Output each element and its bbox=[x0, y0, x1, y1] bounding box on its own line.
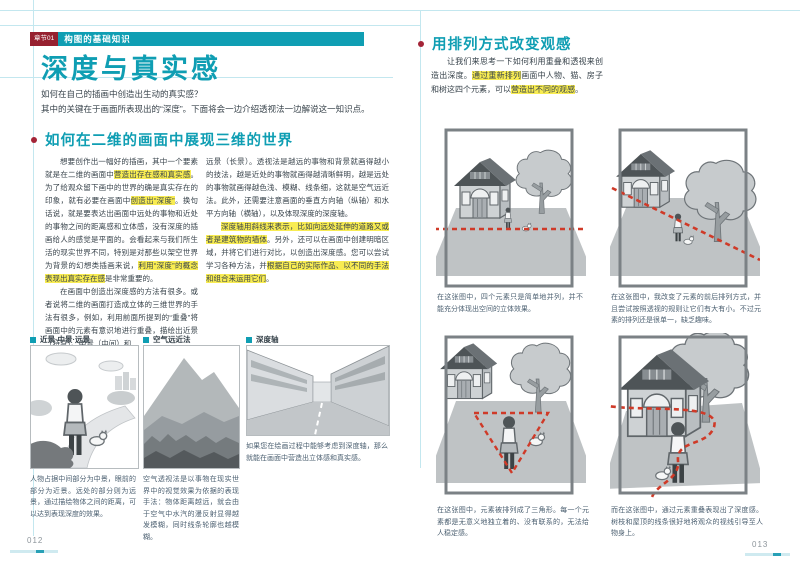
intro-line: 如何在自己的插画中创造出生动的真实感？ bbox=[41, 88, 203, 100]
arrangement-figure-1 bbox=[436, 126, 586, 294]
page-number-marker bbox=[36, 550, 44, 553]
figure-caption: 在这张图中，元素被排列成了三角形。每一个元素都是无意义地独立着的、没有联系的，无… bbox=[437, 505, 589, 540]
distant-city bbox=[115, 372, 136, 390]
cloud bbox=[99, 361, 123, 371]
body-column-2: 远景（长景）。透视法是越远的事物和背景就画得越小的技法，越是近处的事物就画得越清… bbox=[206, 155, 389, 285]
figure-caption: 而在这张图中，通过元素重叠表现出了深度感。树枝和屋顶的线条很好地将观众的视线引导… bbox=[611, 505, 763, 540]
guide-line-center-margin bbox=[420, 10, 421, 468]
guide-line-top-left bbox=[0, 25, 420, 26]
right-intro-paragraph: 让我们来思考一下如何利用重叠和透视来创造出深度。通过重新排列画面中人物、猫、房子… bbox=[431, 55, 603, 97]
figure-depth-axis-illustration bbox=[246, 345, 390, 436]
cloud bbox=[46, 353, 76, 365]
guide-line-top bbox=[0, 10, 800, 11]
page-number-marker bbox=[773, 553, 781, 556]
page-number-bar bbox=[745, 553, 790, 556]
distant-bush bbox=[107, 391, 135, 405]
figure-label-near-mid-far: 近景·中景·远景 bbox=[30, 334, 90, 345]
section-heading-left: 如何在二维的画面中展现三维的世界 bbox=[31, 129, 293, 150]
figure-near-mid-far-illustration bbox=[30, 345, 139, 469]
book-spread: 章节01 构图的基础知识 深度与真实感 如何在自己的插画中创造出生动的真实感？ … bbox=[0, 0, 800, 566]
figure-caption: 空气透视法是以事物在现实世界中的视觉效果为依据的表现手法：物体距离越远，就会由于… bbox=[143, 474, 239, 543]
figure-caption: 在这张图中，四个元素只是简单地并列，并不能充分体现出空间的立体效果。 bbox=[437, 292, 583, 315]
chapter-title: 构图的基础知识 bbox=[64, 33, 131, 45]
figure-caption: 在这张图中，我改变了元素的前后排列方式，并且尝试按照透视的规则让它们有大有小。不… bbox=[611, 292, 761, 327]
figure-label-aerial-perspective: 空气远近法 bbox=[143, 334, 191, 345]
foreground-bush bbox=[30, 441, 73, 469]
tree bbox=[516, 150, 571, 213]
arrangement-figure-2 bbox=[610, 126, 760, 294]
body-paragraph: 远景（长景）。透视法是越远的事物和背景就画得越小的技法，越是近处的事物就画得越清… bbox=[206, 155, 389, 220]
section-heading-right: 用排列方式改变观感 bbox=[418, 33, 572, 54]
body-paragraph: 想要创作出一幅好的插画，其中一个要素就是在二维的画面中营造出存在感和真实感。为了… bbox=[45, 155, 198, 285]
figure-caption: 如果您在绘画过程中能够考虑到深度轴，那么就能在画面中营造出立体感和真实感。 bbox=[246, 441, 388, 464]
intro-line: 其中的关键在于画面所表现出的“深度”。下面将会一边介绍透视法一边解说这一知识点。 bbox=[41, 103, 370, 115]
page-number-right: 013 bbox=[752, 540, 768, 549]
mid-bush bbox=[30, 400, 52, 416]
label-square-icon bbox=[143, 337, 149, 343]
far-building bbox=[313, 382, 331, 402]
house bbox=[616, 150, 675, 207]
figure-caption: 人物占据中间部分为中景，眼前的部分为近景。远处的部分则为远景，通过描绘物体之间的… bbox=[30, 474, 136, 520]
figure-aerial-perspective-illustration bbox=[143, 345, 240, 469]
label-square-icon bbox=[30, 337, 36, 343]
label-square-icon bbox=[246, 337, 252, 343]
page-number-bar bbox=[10, 550, 58, 553]
section-bullet-icon bbox=[31, 137, 37, 143]
chapter-number-tag: 章节01 bbox=[30, 32, 58, 46]
chapter-bar: 章节01 构图的基础知识 bbox=[30, 32, 364, 46]
body-paragraph: 深度轴用斜线来表示，比如向远处延伸的道路又或者是建筑物的墙体。另外，还可以在画面… bbox=[206, 220, 389, 285]
page-title: 深度与真实感 bbox=[41, 47, 221, 86]
arrangement-figure-4 bbox=[610, 333, 760, 501]
figure-label-depth-axis: 深度轴 bbox=[246, 334, 279, 345]
house bbox=[440, 343, 497, 398]
arrangement-figure-3 bbox=[436, 333, 586, 501]
page-number-left: 012 bbox=[27, 536, 43, 545]
section-bullet-icon bbox=[418, 41, 424, 47]
body-column-1: 想要创作出一幅好的插画，其中一个要素就是在二维的画面中营造出存在感和真实感。为了… bbox=[45, 155, 198, 350]
